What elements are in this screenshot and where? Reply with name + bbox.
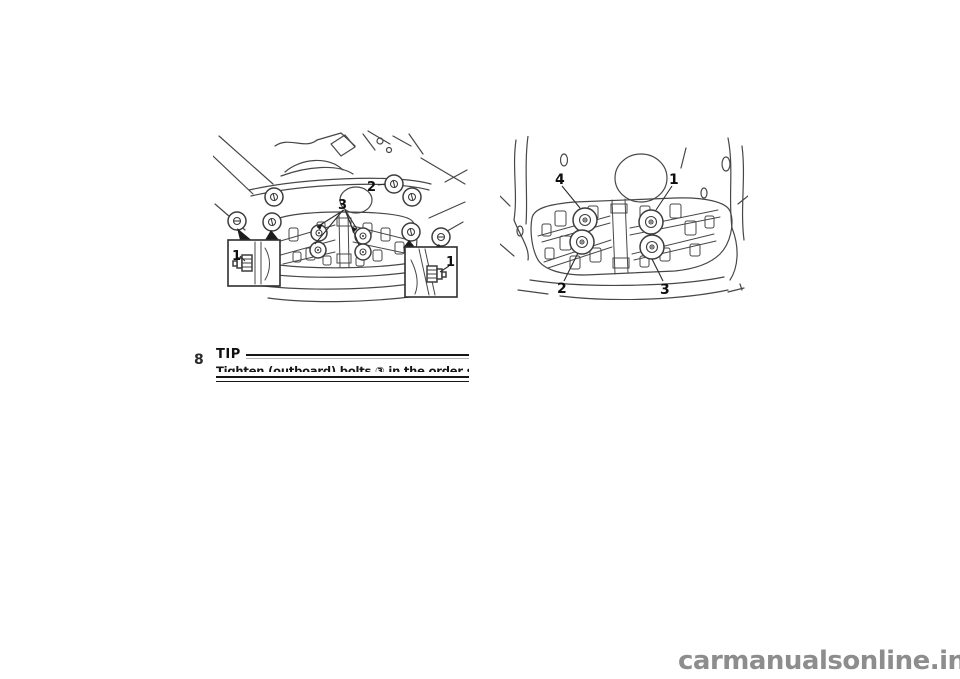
tip-closing-rule [216, 376, 469, 382]
callout-2: 2 [367, 180, 376, 195]
bolt-detail-inset-left: 1 [228, 240, 280, 286]
callout-3: 3 [660, 282, 670, 298]
watermark: carmanualsonline.info [678, 646, 960, 676]
tip-heading-row: TIP [216, 348, 469, 362]
figure-bolt-tightening-order: 4 1 2 3 [500, 136, 748, 300]
bolt-icon [263, 213, 281, 231]
bolt-icon [265, 188, 283, 206]
order-bolts [570, 208, 664, 259]
callout-3: 3 [338, 198, 347, 213]
skid-plate-art [531, 198, 732, 275]
bolt-icon [355, 244, 371, 260]
tip-body-text: Tighten (outboard) bolts ③ in the order … [216, 365, 469, 372]
chassis-line-art [213, 131, 467, 238]
figure-skid-plate-bolt-locations: 1 1 2 [213, 130, 468, 308]
bolt-icon [432, 228, 450, 246]
bolt-icon [310, 242, 326, 258]
callout-1-left: 1 [232, 249, 241, 264]
callout-1-right: 1 [446, 255, 455, 270]
figure-2-art: 4 1 2 3 [500, 136, 748, 300]
chapter-number: 8 [194, 352, 204, 368]
callout-4: 4 [555, 172, 565, 188]
bolt-icon [402, 223, 420, 241]
center-bolts [310, 225, 371, 260]
tip-heading-rule [246, 354, 469, 359]
bolt-icon [640, 235, 664, 259]
lower-body-lines [518, 277, 744, 300]
bolt-icon [385, 175, 403, 193]
bolt-icon [570, 230, 594, 254]
tip-heading: TIP [216, 348, 246, 362]
tip-section: TIP Tighten (outboard) bolts ③ in the or… [216, 348, 469, 382]
bolt-icon [573, 208, 597, 232]
callout-2: 2 [557, 281, 567, 297]
bolt-icon [639, 210, 663, 234]
bolt-detail-inset-right: 1 [405, 247, 457, 297]
callout-1: 1 [669, 172, 679, 188]
bolt-icon [403, 188, 421, 206]
bolt-icon [228, 212, 246, 230]
skid-plate-art [271, 212, 417, 268]
figure-1-art: 1 1 2 [213, 130, 468, 308]
manual-page: 1 1 2 [0, 0, 960, 679]
